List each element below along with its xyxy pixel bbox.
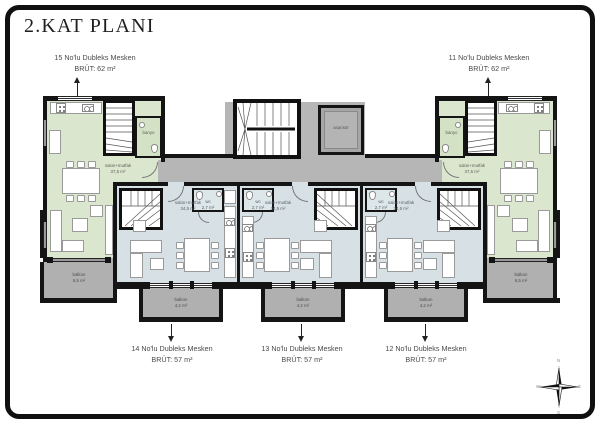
armchair (314, 220, 327, 232)
window (58, 96, 92, 101)
door-mullion (47, 257, 53, 263)
balcony-parapet (483, 288, 487, 303)
window (553, 222, 557, 248)
unit-callout-12: 12 No'lu Dubleks Mesken BRÜT: 57 m² (361, 343, 491, 365)
kitchen-counter (224, 206, 236, 278)
dining-chair (256, 262, 264, 269)
dining-chair (176, 262, 184, 269)
dining-chair (291, 252, 299, 259)
staircase-unit-11 (465, 100, 497, 156)
sideboard (105, 205, 113, 255)
unit-14-area: BRÜT: 57 m² (107, 354, 237, 365)
unit-callout-13: 13 No'lu Dubleks Mesken BRÜT: 57 m² (237, 343, 367, 365)
door-mullion (190, 281, 194, 289)
coffee-table (150, 258, 164, 270)
door-mullion (414, 281, 418, 289)
dining-chair (66, 161, 74, 168)
stove-icon (56, 103, 66, 113)
wall-segment (113, 282, 150, 289)
window (553, 120, 557, 146)
unit-11-name: 11 No'lu Dubleks Mesken (424, 52, 554, 63)
sliding-door (395, 283, 457, 288)
sliding-door (272, 283, 334, 288)
sofa (516, 240, 538, 252)
sofa (130, 253, 143, 278)
balcony-label-14: balkon 4,2 m² (153, 297, 209, 309)
balcony-parapet (40, 262, 44, 303)
dining-chair (176, 252, 184, 259)
dining-chair (256, 252, 264, 259)
dining-chair (379, 262, 387, 269)
dining-chair (526, 195, 534, 202)
dining-chair (88, 195, 96, 202)
arrow-down-icon (422, 336, 428, 342)
dining-table (264, 238, 290, 272)
dining-chair (211, 242, 219, 249)
elevator: asansör (318, 105, 364, 155)
central-staircase (233, 99, 301, 159)
dining-chair (515, 161, 523, 168)
callout-arrow-line (488, 83, 489, 97)
sink-icon (365, 224, 376, 232)
dining-chair (414, 242, 422, 249)
dining-chair (77, 161, 85, 168)
wall-segment (113, 184, 117, 288)
sofa (62, 240, 84, 252)
fridge (224, 190, 236, 204)
elevator-label: asansör (321, 125, 361, 131)
balcony-parapet (261, 317, 345, 322)
dining-chair (66, 195, 74, 202)
toilet-icon (442, 144, 449, 153)
sofa (50, 210, 62, 252)
room-label-bath: banyo (135, 130, 162, 136)
armchair (497, 205, 510, 217)
washbasin-icon (266, 191, 272, 197)
wall-segment (237, 184, 240, 288)
sofa (300, 240, 332, 253)
stove-icon (225, 248, 235, 258)
door-mullion (489, 257, 495, 263)
toilet-icon (151, 144, 158, 153)
sofa (442, 253, 455, 278)
unit-14-name: 14 No'lu Dubleks Mesken (107, 343, 237, 354)
unit-15-area: BRÜT: 62 m² (30, 63, 160, 74)
dining-chair (291, 242, 299, 249)
dining-chair (515, 195, 523, 202)
balcony-parapet (40, 298, 117, 303)
compass-icon (536, 364, 582, 410)
door-mullion (435, 281, 439, 289)
compass-north-label: N (557, 358, 560, 363)
window (43, 222, 47, 248)
dining-chair (77, 195, 85, 202)
dining-chair (504, 195, 512, 202)
stove-icon (366, 252, 376, 262)
sofa (423, 240, 455, 253)
balcony-label-13: balkon 4,2 m² (275, 297, 331, 309)
dining-chair (256, 242, 264, 249)
fridge (49, 130, 61, 154)
dining-chair (211, 252, 219, 259)
coffee-table (423, 258, 437, 270)
armchair (133, 220, 146, 232)
compass-west-label: W (536, 384, 540, 389)
dining-chair (176, 242, 184, 249)
sofa (538, 210, 550, 252)
sink-icon (224, 218, 235, 226)
sink-icon (242, 224, 253, 232)
dining-chair (504, 161, 512, 168)
coffee-table (512, 218, 528, 232)
balcony-label-15: balkon 6,5 m² (50, 272, 108, 284)
dining-chair (414, 262, 422, 269)
room-label-salon-14: salon+mutfak 34,5 m² (165, 200, 211, 212)
door-mullion (169, 281, 173, 289)
unit-12-name: 12 No'lu Dubleks Mesken (361, 343, 491, 354)
room-label-salon-13: salon+mutfak 34,5 m² (255, 200, 301, 212)
compass-south-label: S (557, 410, 560, 415)
unit-callout-11: 11 No'lu Dubleks Mesken BRÜT: 62 m² (424, 52, 554, 74)
unit-15-name: 15 No'lu Dubleks Mesken (30, 52, 160, 63)
balcony-label-12: balkon 4,2 m² (398, 297, 454, 309)
compass-east-label: E (578, 384, 581, 389)
armchair (437, 220, 450, 232)
armchair (90, 205, 103, 217)
room-label-bath: banyo (438, 130, 465, 136)
sideboard (487, 205, 495, 255)
dining-chair (414, 252, 422, 259)
bathroom-11 (438, 116, 465, 158)
arrow-up-icon (485, 77, 491, 83)
unit-11-area: BRÜT: 62 m² (424, 63, 554, 74)
unit-12-area: BRÜT: 57 m² (361, 354, 491, 365)
wall-segment (165, 154, 233, 158)
balcony-parapet (139, 317, 223, 322)
staircase-unit-15 (103, 100, 135, 156)
sliding-door (52, 258, 106, 262)
fridge (539, 130, 551, 154)
room-label-salon-15: salon+mutfak 37,5 m² (95, 163, 141, 175)
balcony-parapet (553, 262, 557, 303)
page-title: 2.KAT PLANI (24, 15, 155, 38)
arrow-down-icon (298, 336, 304, 342)
washbasin-icon (139, 122, 145, 128)
sink-icon (506, 104, 518, 112)
arrow-down-icon (168, 336, 174, 342)
floor-plan-page: 2.KAT PLANI 15 No'lu Dubleks Mesken BRÜT… (0, 0, 600, 424)
door-mullion (312, 281, 316, 289)
callout-arrow-line (77, 83, 78, 97)
balcony-parapet (113, 288, 117, 303)
coffee-table (300, 258, 314, 270)
dining-chair (211, 262, 219, 269)
coffee-table (72, 218, 88, 232)
dining-chair (379, 242, 387, 249)
wall-segment (365, 154, 439, 158)
balcony-label-11: balkon 6,5 m² (492, 272, 550, 284)
door-mullion (291, 281, 295, 289)
washbasin-icon (455, 122, 461, 128)
balcony-parapet (384, 317, 468, 322)
stove-icon (534, 103, 544, 113)
washbasin-icon (216, 191, 222, 197)
stove-icon (243, 252, 253, 262)
sink-icon (82, 104, 94, 112)
compass-rose: N E S W (536, 358, 582, 416)
dining-table (500, 168, 538, 194)
dining-table (184, 238, 210, 272)
unit-callout-15: 15 No'lu Dubleks Mesken BRÜT: 62 m² (30, 52, 160, 74)
room-label-salon-11: salon+mutfak 37,5 m² (449, 163, 495, 175)
wall-pier (557, 210, 560, 258)
washbasin-icon (389, 191, 395, 197)
sofa (319, 253, 332, 278)
door-mullion (547, 257, 553, 263)
door-mullion (105, 257, 111, 263)
sliding-door (150, 283, 212, 288)
unit-13-name: 13 No'lu Dubleks Mesken (237, 343, 367, 354)
window (508, 96, 542, 101)
dining-chair (526, 161, 534, 168)
dining-chair (291, 262, 299, 269)
sofa (130, 240, 162, 253)
wall-segment (360, 184, 363, 288)
window (43, 120, 47, 146)
arrow-up-icon (74, 77, 80, 83)
sliding-door (494, 258, 548, 262)
dining-table (387, 238, 413, 272)
unit-callout-14: 14 No'lu Dubleks Mesken BRÜT: 57 m² (107, 343, 237, 365)
dining-chair (379, 252, 387, 259)
room-label-salon-12: salon+mutfak 34,5 m² (378, 200, 424, 212)
balcony-parapet (483, 298, 560, 303)
unit-13-area: BRÜT: 57 m² (237, 354, 367, 365)
